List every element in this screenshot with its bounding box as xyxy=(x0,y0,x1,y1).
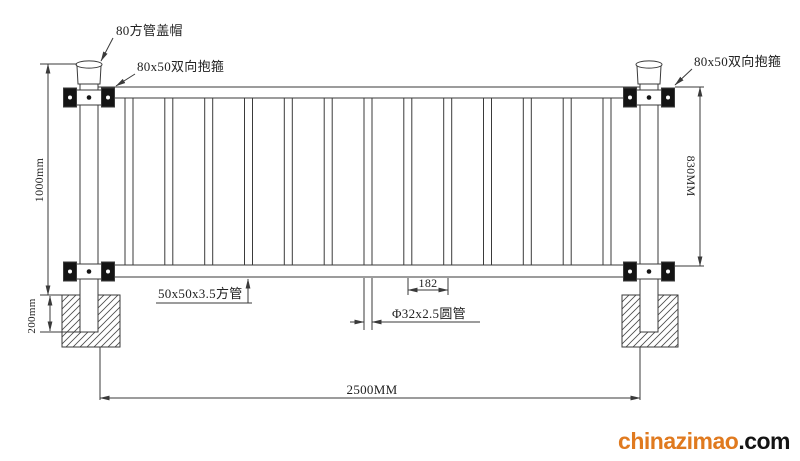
label-round-tube: Φ32x2.5圆管 xyxy=(392,306,466,321)
drawing-canvas: 80方管盖帽 80x50双向抱箍 80x50双向抱箍 50x50x3.5方管 Φ… xyxy=(0,0,800,461)
dim-text-rail-height: 830MM xyxy=(684,156,698,197)
picket-tube xyxy=(523,98,531,265)
post-cap-top xyxy=(636,61,662,68)
callout-cap xyxy=(101,38,113,61)
dim-text-height-total: 1000mm xyxy=(32,157,46,202)
label-clamp-left: 80x50双向抱箍 xyxy=(137,59,224,74)
picket-tube xyxy=(484,98,492,265)
watermark-suffix: .com xyxy=(738,428,790,454)
label-clamp-right: 80x50双向抱箍 xyxy=(694,54,781,69)
technical-drawing: 80方管盖帽 80x50双向抱箍 80x50双向抱箍 50x50x3.5方管 Φ… xyxy=(0,0,800,461)
callout-round-tube xyxy=(350,278,480,330)
pickets xyxy=(125,98,611,265)
post-cap xyxy=(637,66,661,84)
picket-tube xyxy=(125,98,133,265)
picket-tube xyxy=(284,98,292,265)
callout-clamp-right xyxy=(675,69,692,85)
bottom-rail xyxy=(98,265,640,277)
watermark-brand: chinazimao xyxy=(618,428,738,454)
post-cap xyxy=(77,66,101,84)
label-cap: 80方管盖帽 xyxy=(116,23,183,38)
left-top-clamp xyxy=(64,88,115,107)
dim-text-embed-depth: 200mm xyxy=(26,298,38,333)
picket-tube xyxy=(245,98,253,265)
top-rail xyxy=(98,87,640,98)
picket-tube xyxy=(165,98,173,265)
dim-text-picket-gap: 182 xyxy=(419,276,438,290)
picket-tube xyxy=(324,98,332,265)
right-top-clamp xyxy=(624,88,675,107)
watermark: chinazimao.com xyxy=(618,428,790,455)
picket-tube xyxy=(563,98,571,265)
left-bottom-clamp xyxy=(64,262,115,281)
picket-tube xyxy=(444,98,452,265)
post-cap-top xyxy=(76,61,102,68)
picket-tube xyxy=(205,98,213,265)
picket-tube xyxy=(603,98,611,265)
callout-clamp-left xyxy=(116,74,135,86)
picket-tube xyxy=(404,98,412,265)
picket-tube xyxy=(364,98,372,265)
label-square-tube: 50x50x3.5方管 xyxy=(158,286,243,301)
right-bottom-clamp xyxy=(624,262,675,281)
dim-text-span-width: 2500MM xyxy=(347,382,398,397)
